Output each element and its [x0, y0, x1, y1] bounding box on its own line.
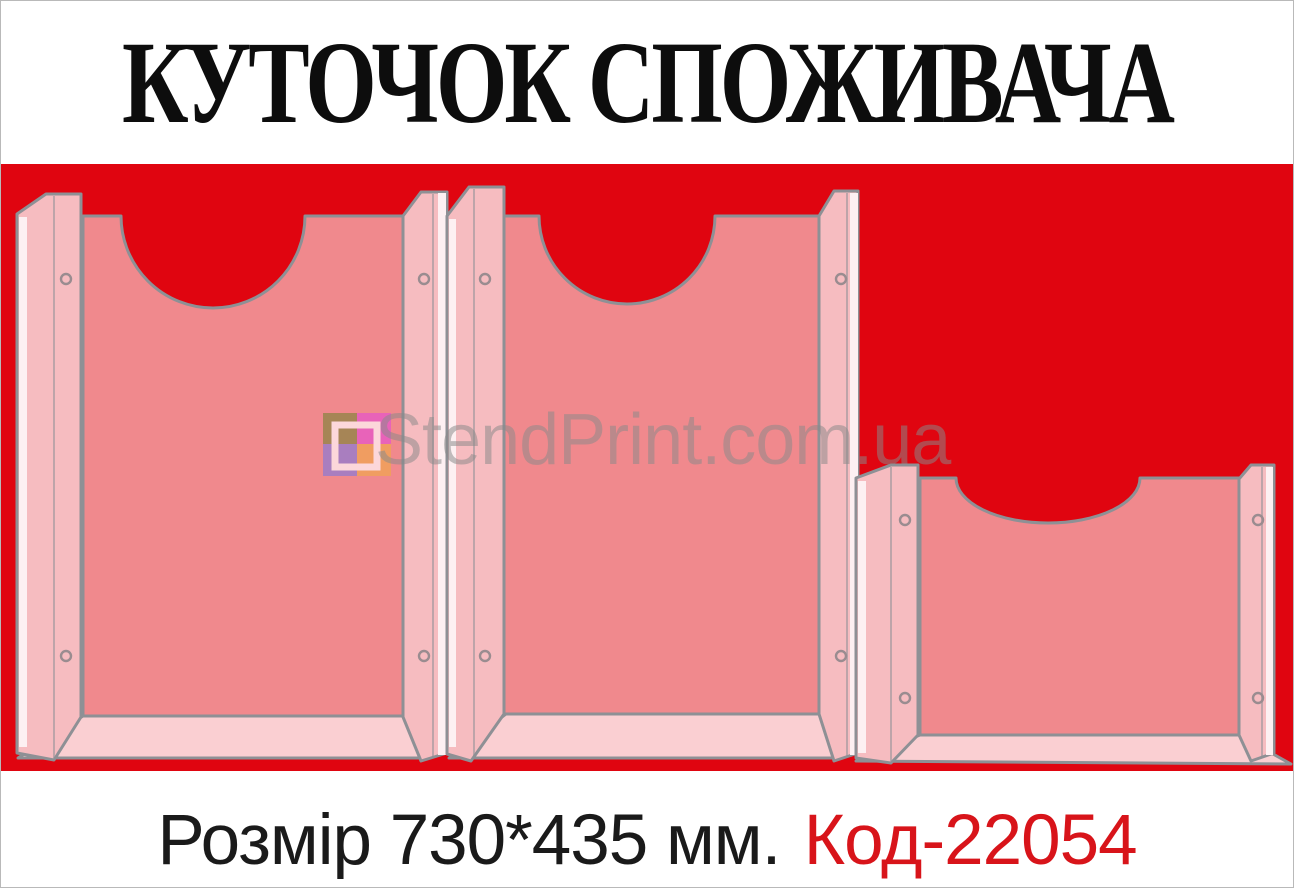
- product-code: Код-22054: [804, 805, 1137, 876]
- bottom-shelf: [449, 714, 839, 758]
- watermark-text: StendPrint.com.ua: [375, 404, 950, 476]
- product-image: КУТОЧОК СПОЖИВАЧА StendPrint.com.ua Розм…: [0, 0, 1294, 888]
- title-banner: КУТОЧОК СПОЖИВАЧА: [1, 1, 1293, 164]
- rail-highlight: [19, 217, 27, 747]
- caption-band: Розмір 730*435 мм. Код-22054: [1, 771, 1293, 888]
- rail-highlight: [858, 481, 866, 753]
- rail-highlight: [1266, 467, 1273, 755]
- bottom-shelf: [856, 735, 1291, 764]
- page-title: КУТОЧОК СПОЖИВАЧА: [122, 24, 1172, 142]
- rail-highlight: [449, 219, 456, 747]
- size-label: Розмір 730*435 мм.: [157, 805, 780, 876]
